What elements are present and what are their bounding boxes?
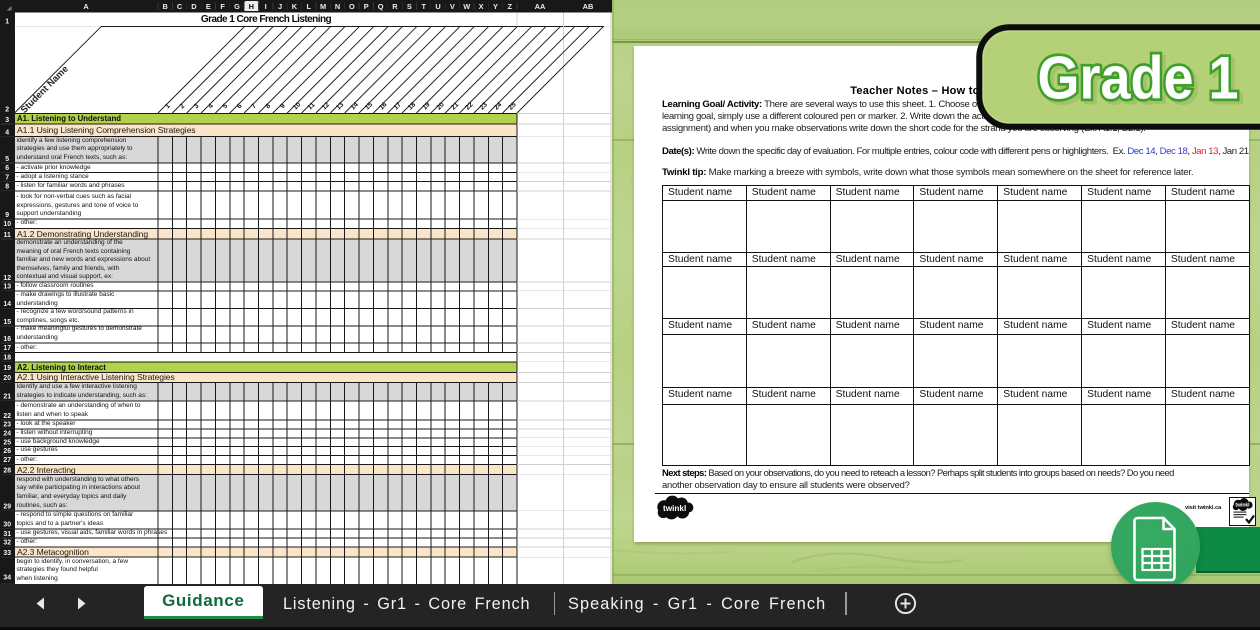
- svg-text:T: T: [421, 2, 426, 11]
- svg-text:1: 1: [5, 19, 9, 26]
- svg-text:27: 27: [3, 457, 11, 464]
- svg-text:Y: Y: [493, 2, 498, 11]
- svg-text:U: U: [435, 2, 440, 11]
- svg-text:twinkl: twinkl: [663, 504, 686, 513]
- svg-text:M: M: [320, 2, 326, 11]
- svg-text:K: K: [292, 2, 298, 11]
- svg-text:15: 15: [3, 319, 11, 326]
- svg-text:P: P: [364, 2, 369, 11]
- svg-text:20: 20: [3, 375, 11, 382]
- svg-text:6: 6: [5, 165, 9, 172]
- svg-text:AA: AA: [535, 2, 546, 11]
- svg-text:23: 23: [3, 422, 11, 429]
- svg-text:2: 2: [5, 107, 9, 114]
- svg-text:AB: AB: [583, 2, 594, 11]
- svg-text:7: 7: [5, 174, 9, 181]
- svg-text:5: 5: [5, 156, 9, 163]
- svg-text:G: G: [234, 2, 240, 11]
- svg-text:I: I: [265, 2, 267, 11]
- svg-text:R: R: [392, 2, 398, 11]
- svg-text:J: J: [278, 2, 282, 11]
- svg-text:S: S: [407, 2, 412, 11]
- svg-text:E: E: [206, 2, 211, 11]
- svg-text:W: W: [463, 2, 470, 11]
- svg-text:19: 19: [3, 365, 11, 372]
- svg-text:Grade 1: Grade 1: [1038, 45, 1239, 112]
- svg-text:31: 31: [3, 531, 11, 538]
- svg-text:12: 12: [3, 275, 11, 282]
- svg-text:24: 24: [3, 431, 11, 438]
- svg-text:B: B: [163, 2, 168, 11]
- svg-text:17: 17: [3, 345, 11, 352]
- svg-text:22: 22: [3, 413, 11, 420]
- svg-text:O: O: [349, 2, 355, 11]
- svg-text:11: 11: [4, 232, 11, 239]
- svg-text:30: 30: [3, 522, 11, 529]
- svg-text:9: 9: [5, 212, 9, 219]
- svg-text:28: 28: [3, 468, 11, 475]
- svg-text:A: A: [83, 2, 89, 11]
- svg-text:F: F: [220, 2, 225, 11]
- svg-text:34: 34: [3, 574, 11, 581]
- svg-text:D: D: [191, 2, 197, 11]
- svg-text:N: N: [335, 2, 340, 11]
- svg-text:18: 18: [3, 355, 11, 362]
- svg-text:8: 8: [5, 184, 9, 191]
- svg-text:16: 16: [3, 336, 11, 343]
- svg-text:25: 25: [3, 440, 11, 447]
- svg-text:13: 13: [3, 284, 11, 291]
- svg-text:10: 10: [3, 221, 11, 228]
- svg-text:X: X: [479, 2, 484, 11]
- svg-text:C: C: [177, 2, 183, 11]
- svg-text:twinkl: twinkl: [1235, 503, 1250, 509]
- svg-text:32: 32: [3, 540, 11, 547]
- svg-text:L: L: [307, 2, 312, 11]
- svg-text:21: 21: [3, 394, 11, 401]
- svg-text:Q: Q: [378, 2, 384, 11]
- svg-text:26: 26: [3, 448, 11, 455]
- svg-text:33: 33: [3, 550, 11, 557]
- svg-text:V: V: [450, 2, 455, 11]
- svg-text:29: 29: [3, 504, 11, 511]
- svg-text:14: 14: [3, 301, 11, 308]
- svg-text:4: 4: [5, 130, 9, 137]
- svg-text:3: 3: [5, 117, 9, 124]
- svg-text:H: H: [249, 2, 254, 11]
- svg-text:Z: Z: [508, 2, 513, 11]
